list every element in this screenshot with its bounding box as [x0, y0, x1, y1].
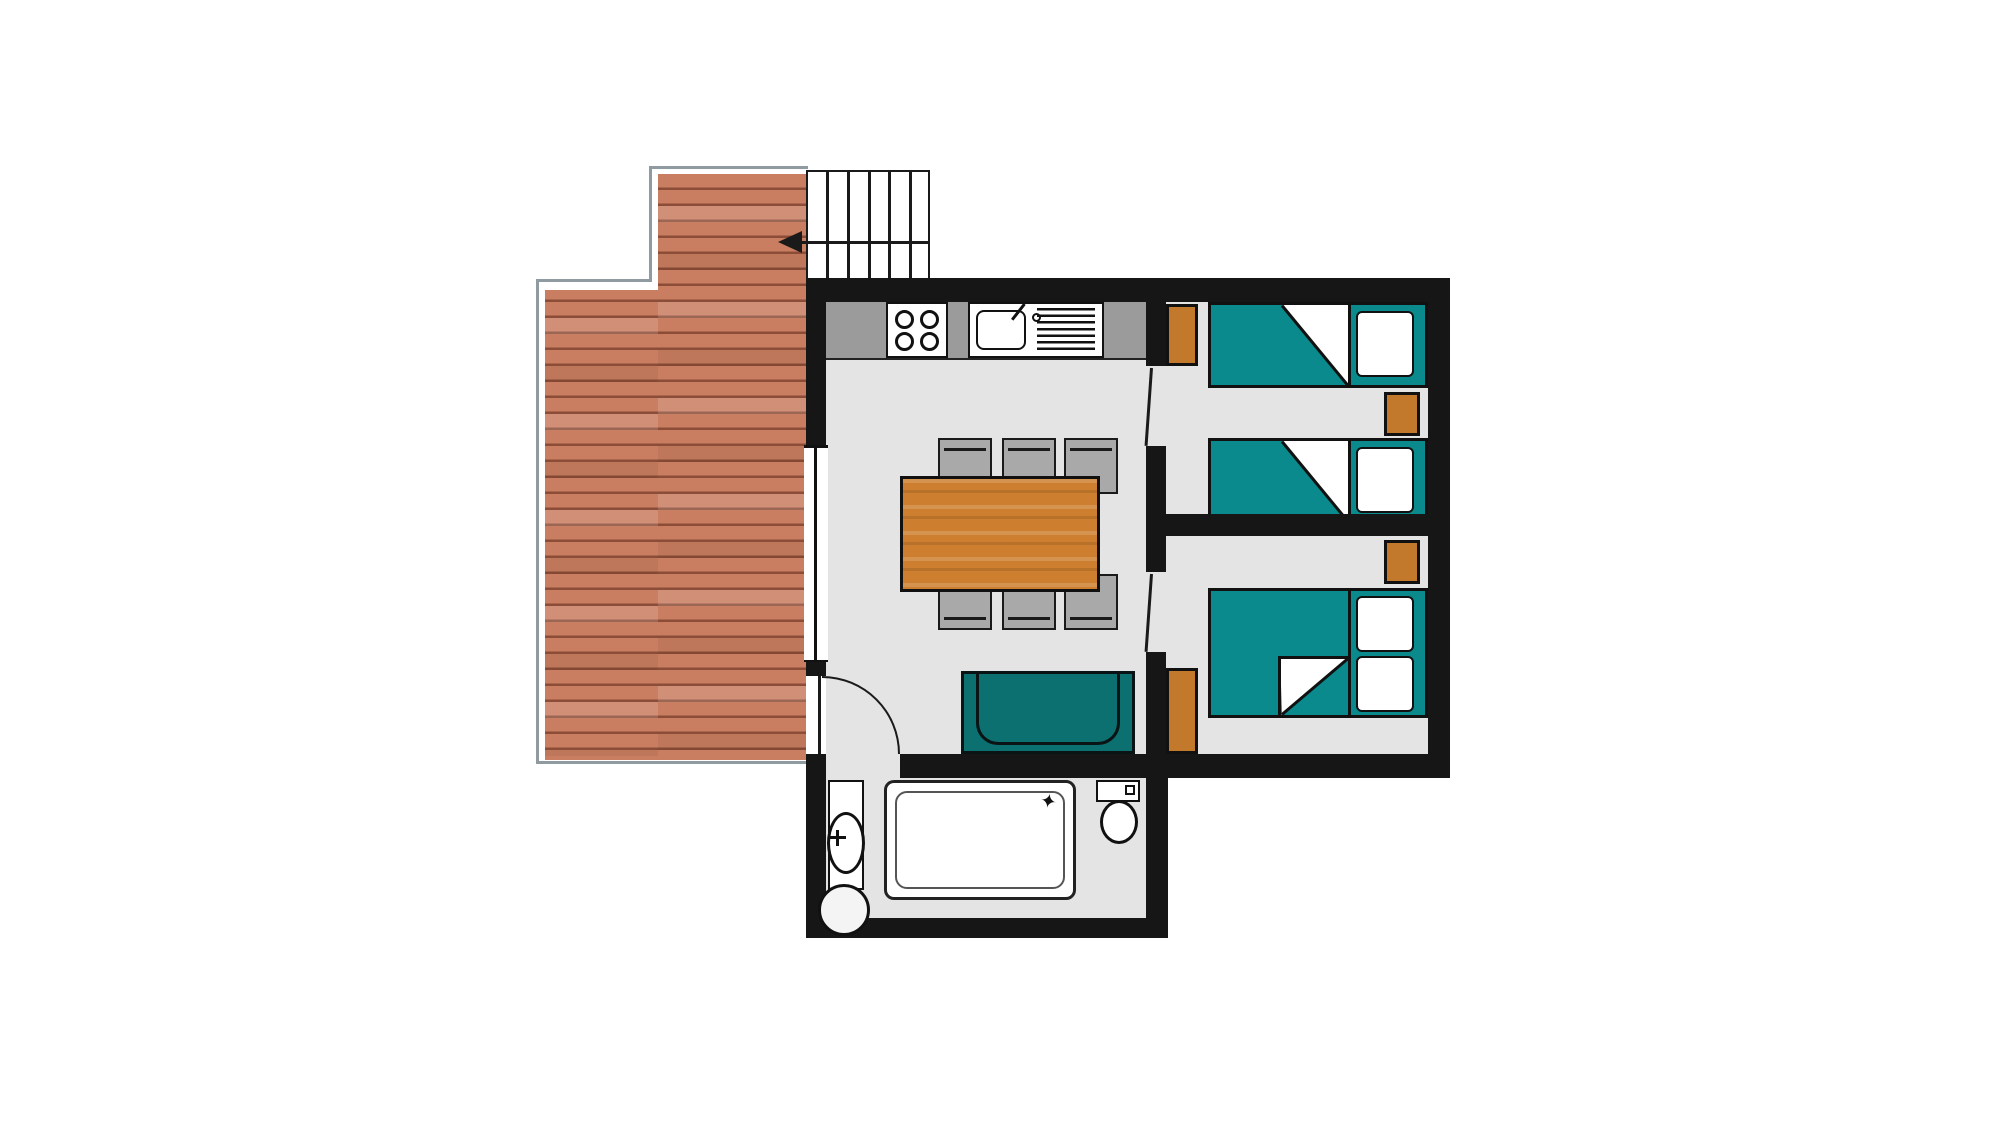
stove-burner: [895, 310, 914, 329]
stair-tread-line: [826, 172, 829, 278]
single-bed-1: [1208, 302, 1428, 388]
stove-burner: [895, 332, 914, 351]
deck-outline-top: [649, 166, 808, 169]
double-bed: [1208, 588, 1428, 718]
wall-interior-seg3: [1146, 652, 1166, 754]
wall-left-upper: [806, 302, 826, 445]
wardrobe-bedroom1: [1166, 304, 1198, 366]
stove-burner: [920, 310, 939, 329]
bed-pillow-divider: [1348, 591, 1351, 715]
toilet-flush-button: [1125, 785, 1135, 795]
stove: [886, 302, 948, 358]
sofa: [961, 671, 1135, 754]
bed-pillow-divider: [1348, 441, 1351, 521]
window-frame-line: [814, 445, 817, 662]
deck-outline-bottom: [536, 761, 808, 764]
deck-outline-left-upper: [649, 166, 652, 282]
stair-tread-line: [909, 172, 912, 278]
stove-burner: [920, 332, 939, 351]
bathroom-door-leaf: [818, 676, 821, 754]
bed-fold-left-line: [1278, 656, 1281, 716]
wall-bedroom-divider: [1146, 514, 1450, 536]
bed-fold-top-line: [1278, 656, 1348, 659]
deck-outline-step: [536, 279, 652, 282]
window-cap: [804, 445, 828, 448]
washbasin-bowl: [827, 812, 865, 874]
wall-interior-seg1: [1146, 302, 1166, 366]
stairs-direction-arrow-icon: [778, 231, 802, 253]
wall-bathroom-right: [1146, 754, 1168, 938]
pillow: [1356, 447, 1414, 513]
wall-interior-seg2: [1146, 446, 1166, 572]
deck-planks-lower: [545, 290, 658, 760]
pillow: [1356, 656, 1414, 712]
window-to-deck: [804, 445, 828, 662]
pillow: [1356, 311, 1414, 377]
wardrobe-bedroom2: [1166, 668, 1198, 754]
sink-basin: [976, 310, 1026, 350]
single-bed-2: [1208, 438, 1428, 524]
water-heater: [818, 884, 870, 936]
kitchen-sink-unit: [968, 302, 1104, 358]
wall-top: [806, 278, 1450, 302]
dining-table: [900, 476, 1100, 592]
nightstand-bedroom1: [1384, 392, 1420, 436]
washbasin-faucet-icon: [836, 830, 839, 846]
sofa-seat: [976, 671, 1120, 745]
wall-bottom-wing: [900, 754, 1450, 778]
nightstand-bedroom2: [1384, 540, 1420, 584]
sink-drainer: [1037, 308, 1095, 354]
bed-pillow-divider: [1348, 305, 1351, 385]
floor-plan: ✦: [0, 0, 2000, 1125]
deck-outline-left-lower: [536, 279, 539, 764]
shower-tray: ✦: [884, 780, 1076, 900]
toilet-cistern: [1096, 780, 1140, 802]
toilet-bowl: [1100, 800, 1138, 844]
stair-tread-line: [847, 172, 850, 278]
stair-tread-line: [888, 172, 891, 278]
pillow: [1356, 596, 1414, 652]
deck-planks-upper: [658, 174, 806, 760]
stair-tread-line: [868, 172, 871, 278]
stairs-direction-line: [792, 241, 930, 244]
wall-left-stub: [806, 662, 826, 676]
